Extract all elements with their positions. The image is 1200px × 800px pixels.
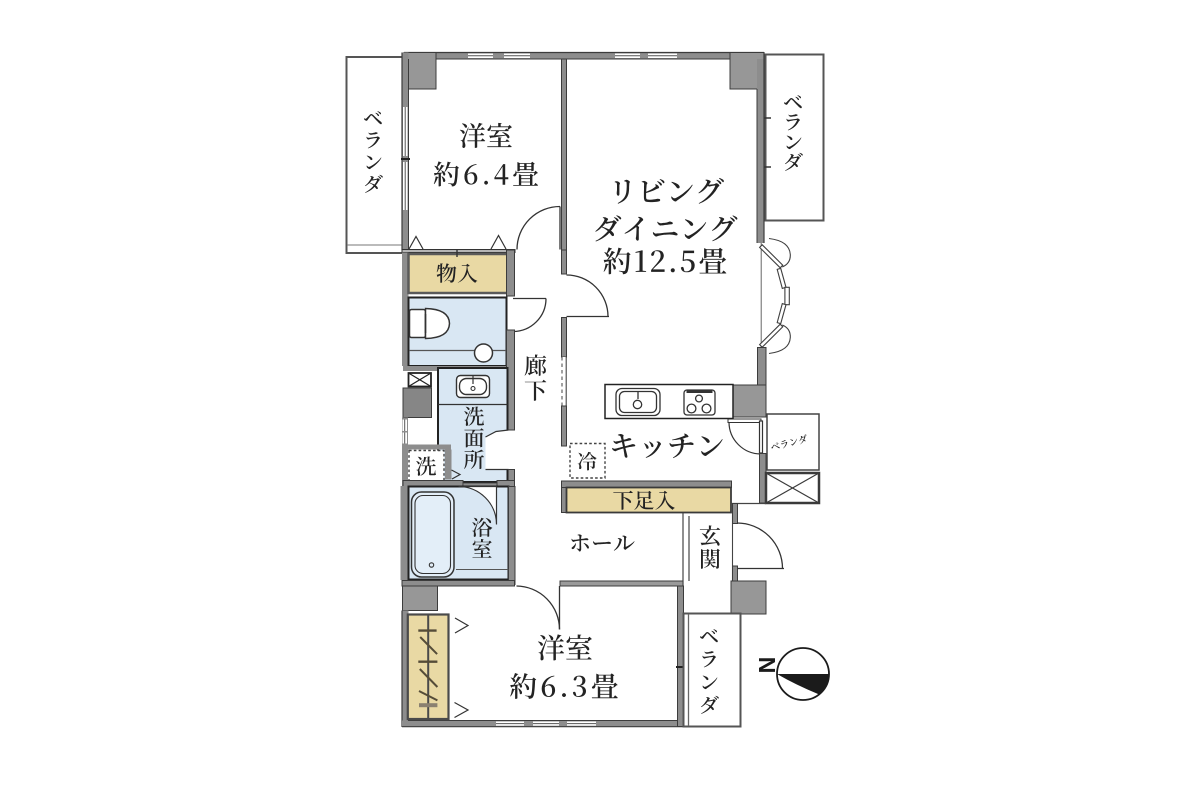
svg-text:N: N: [754, 657, 780, 674]
